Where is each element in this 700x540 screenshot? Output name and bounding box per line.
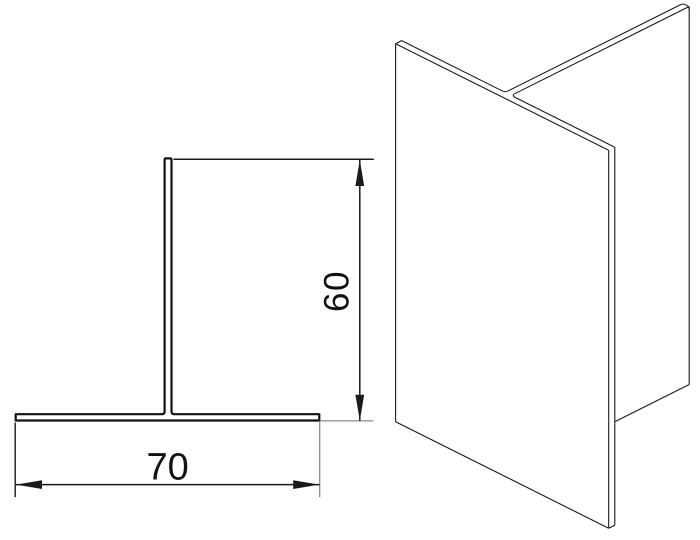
svg-text:60: 60 — [318, 270, 357, 312]
svg-text:70: 70 — [147, 447, 189, 489]
